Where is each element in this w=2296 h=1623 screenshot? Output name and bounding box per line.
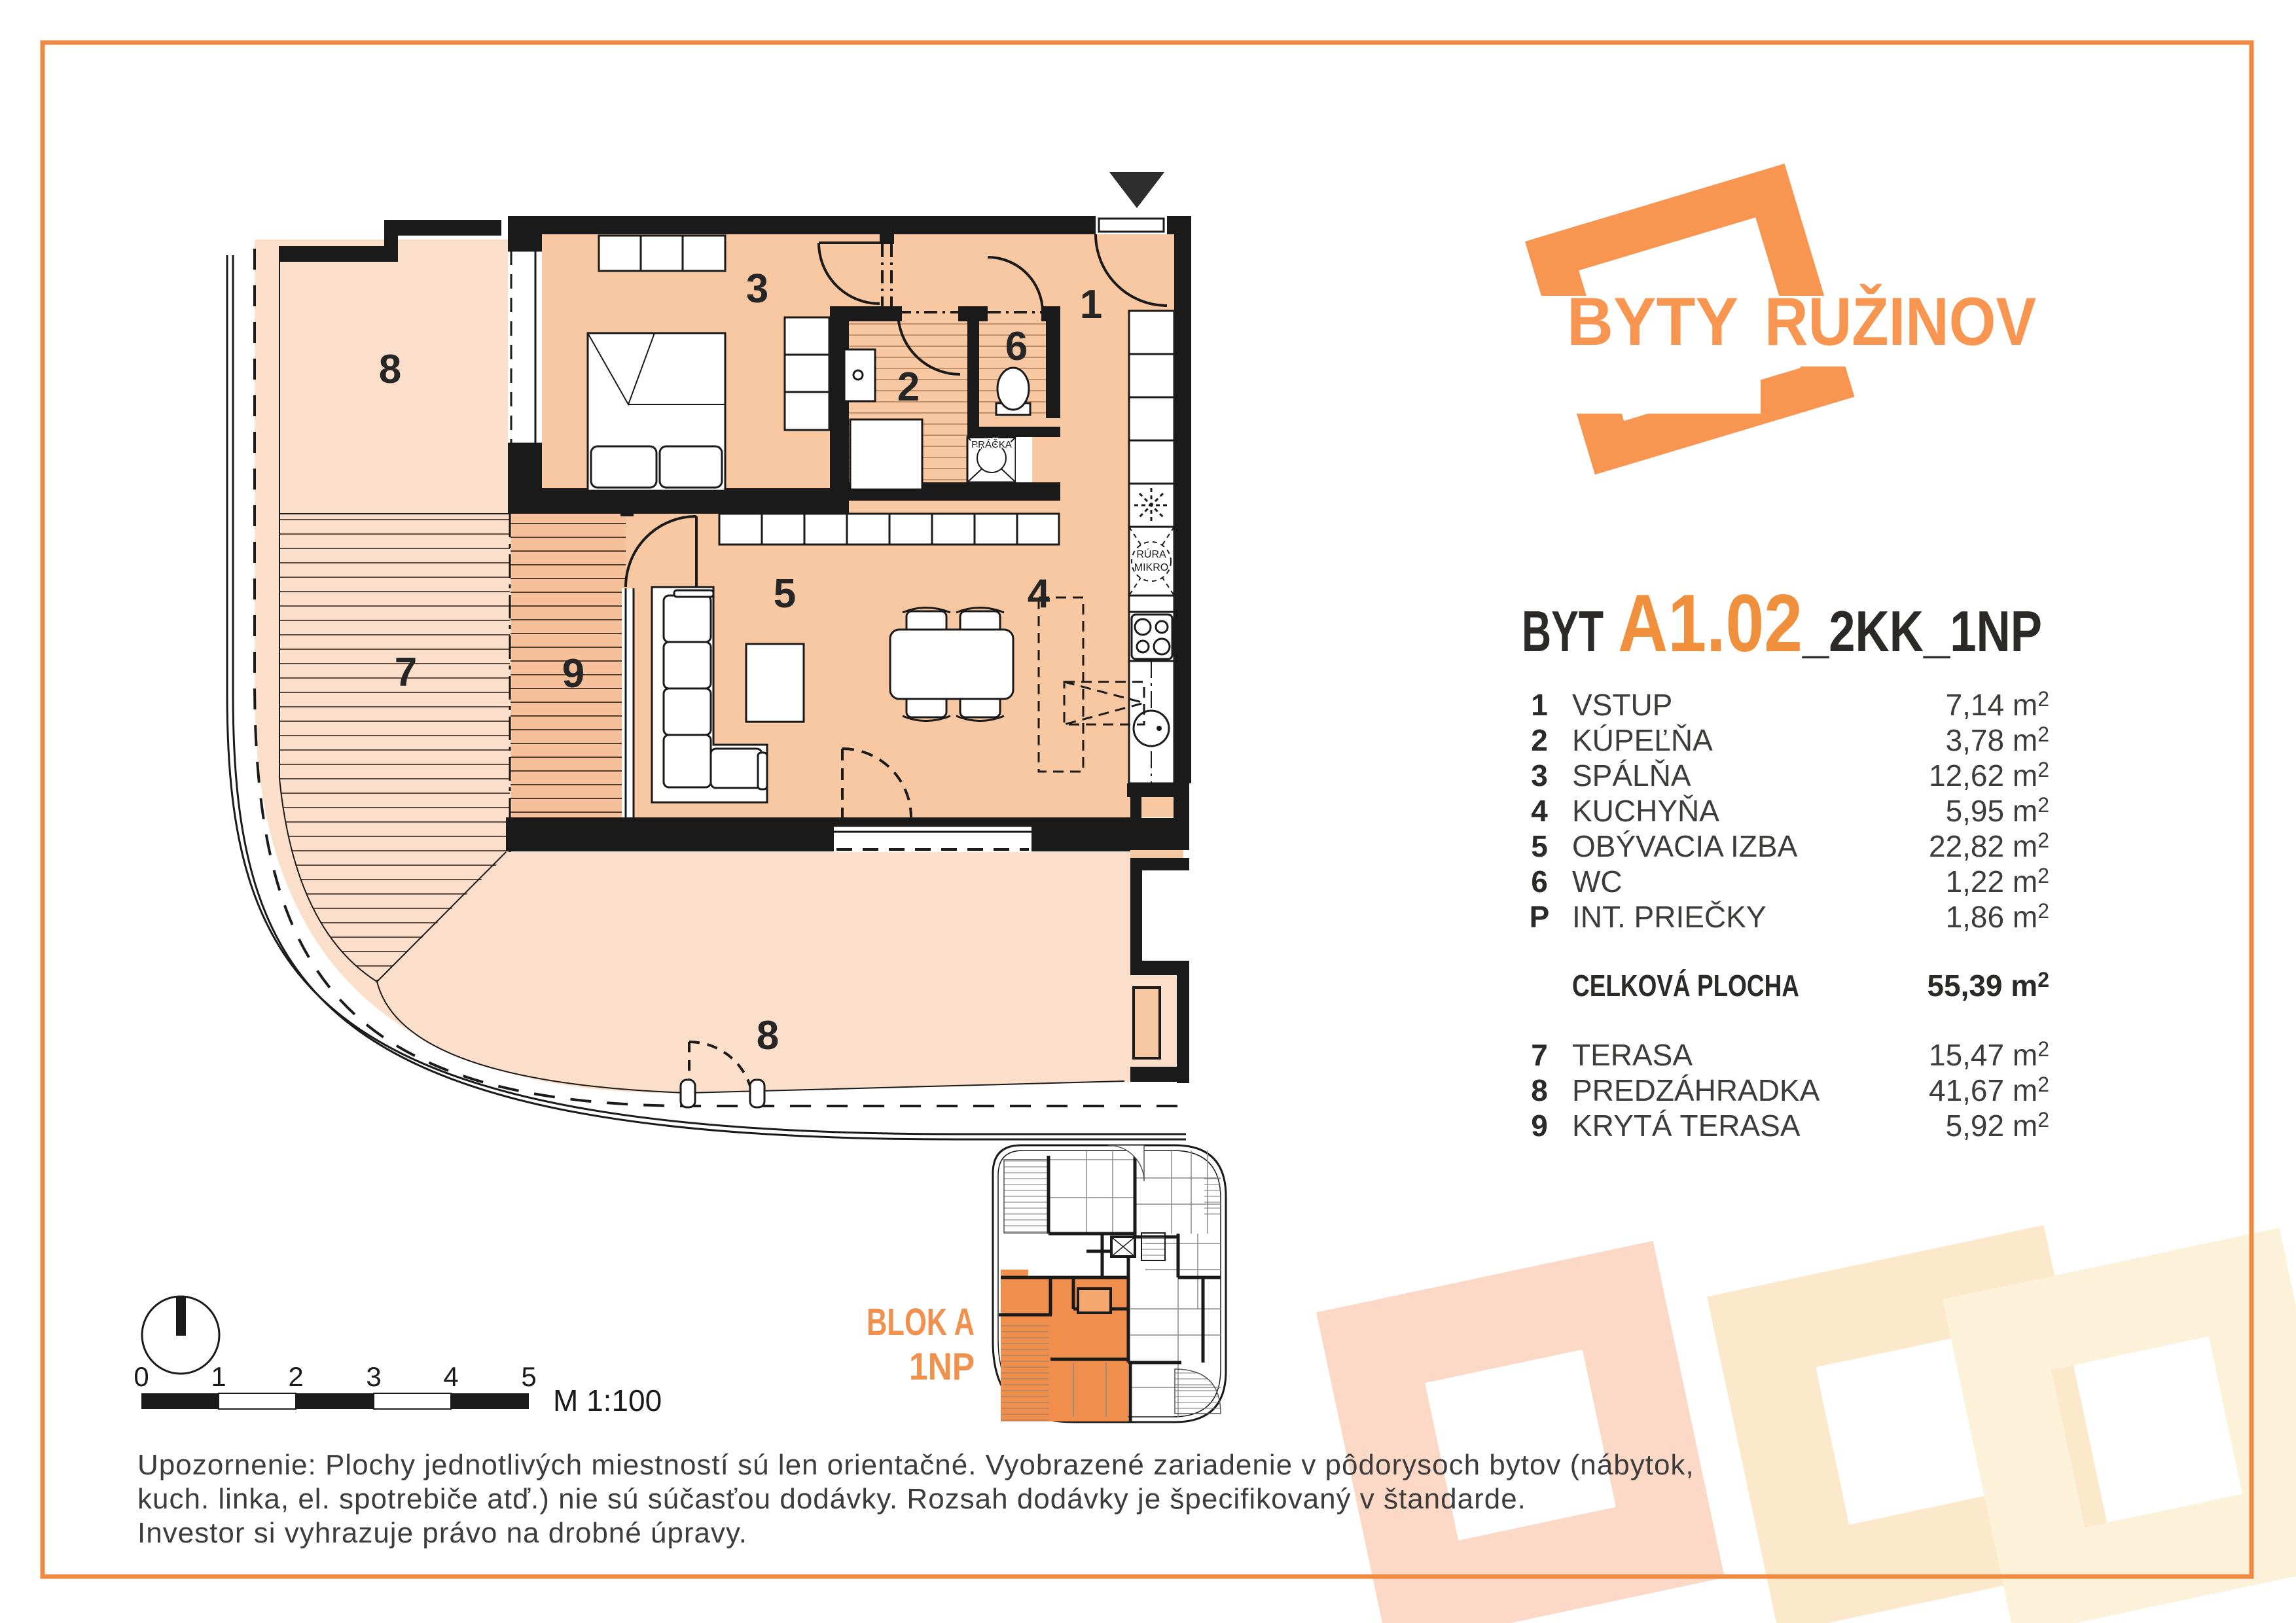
svg-text:3: 3: [1531, 758, 1548, 793]
svg-text:KRYTÁ TERASA: KRYTÁ TERASA: [1572, 1109, 1801, 1143]
svg-text:12,62 m2: 12,62 m2: [1929, 758, 2049, 793]
svg-text:9: 9: [1531, 1109, 1548, 1143]
svg-text:55,39 m2: 55,39 m2: [1927, 968, 2049, 1003]
svg-text:7: 7: [395, 650, 417, 695]
svg-text:RÚRA: RÚRA: [1136, 548, 1166, 560]
svg-text:RUŽINOV: RUŽINOV: [1765, 284, 2036, 360]
svg-text:5,95 m2: 5,95 m2: [1946, 793, 2049, 828]
svg-text:1,86 m2: 1,86 m2: [1946, 899, 2049, 934]
svg-text:M 1:100: M 1:100: [553, 1383, 662, 1418]
svg-text:3: 3: [366, 1361, 381, 1392]
svg-text:PRÁČKA: PRÁČKA: [971, 439, 1012, 450]
svg-text:2: 2: [288, 1361, 303, 1392]
svg-text:VSTUP: VSTUP: [1572, 688, 1672, 722]
svg-text:_2KK_1NP: _2KK_1NP: [1802, 599, 2042, 664]
svg-text:kuch. linka, el. spotrebiče at: kuch. linka, el. spotrebiče atď.) nie sú…: [137, 1483, 1526, 1515]
svg-text:2: 2: [897, 365, 920, 410]
svg-text:MIKRO: MIKRO: [1134, 562, 1168, 573]
svg-text:1NP: 1NP: [909, 1346, 975, 1388]
svg-text:CELKOVÁ PLOCHA: CELKOVÁ PLOCHA: [1572, 969, 1799, 1003]
svg-text:3: 3: [746, 266, 768, 312]
svg-text:8: 8: [757, 1013, 779, 1058]
svg-text:1: 1: [1080, 282, 1102, 327]
svg-text:5: 5: [521, 1361, 536, 1392]
svg-text:2: 2: [1531, 723, 1548, 757]
svg-text:KUCHYŇA: KUCHYŇA: [1572, 794, 1719, 828]
svg-text:8: 8: [1531, 1073, 1548, 1107]
svg-text:OBÝVACIA IZBA: OBÝVACIA IZBA: [1572, 829, 1798, 863]
svg-text:7,14 m2: 7,14 m2: [1946, 687, 2049, 722]
svg-text:P: P: [1530, 900, 1550, 934]
svg-text:1: 1: [211, 1361, 226, 1392]
svg-text:BLOK A: BLOK A: [867, 1301, 975, 1344]
svg-text:6: 6: [1531, 865, 1548, 899]
svg-text:3,78 m2: 3,78 m2: [1946, 722, 2049, 757]
svg-text:Investor si vyhrazuje právo na: Investor si vyhrazuje právo na drobné úp…: [137, 1517, 747, 1549]
svg-text:PREDZÁHRADKA: PREDZÁHRADKA: [1572, 1073, 1820, 1107]
svg-text:15,47 m2: 15,47 m2: [1929, 1037, 2049, 1072]
svg-text:1: 1: [1531, 688, 1548, 722]
svg-text:TERASA: TERASA: [1572, 1038, 1693, 1072]
svg-text:4: 4: [1028, 571, 1050, 616]
svg-text:0: 0: [134, 1361, 149, 1392]
svg-text:5: 5: [774, 571, 796, 616]
svg-text:9: 9: [562, 651, 584, 696]
svg-text:4: 4: [443, 1361, 458, 1392]
svg-text:1,22 m2: 1,22 m2: [1946, 864, 2049, 899]
svg-text:BYT: BYT: [1522, 599, 1604, 664]
svg-text:A1.02: A1.02: [1618, 579, 1803, 669]
svg-text:5,92 m2: 5,92 m2: [1946, 1108, 2049, 1143]
svg-text:Upozornenie: Plochy jednotlivý: Upozornenie: Plochy jednotlivých miestno…: [137, 1449, 1695, 1481]
svg-text:BYTY: BYTY: [1567, 284, 1738, 360]
svg-text:41,67 m2: 41,67 m2: [1929, 1073, 2049, 1107]
svg-text:WC: WC: [1572, 865, 1623, 899]
svg-text:7: 7: [1531, 1038, 1548, 1072]
svg-text:4: 4: [1531, 794, 1548, 828]
svg-text:6: 6: [1005, 324, 1028, 369]
svg-text:INT. PRIEČKY: INT. PRIEČKY: [1572, 900, 1767, 934]
svg-text:KÚPEĽŇA: KÚPEĽŇA: [1572, 723, 1713, 757]
svg-text:22,82 m2: 22,82 m2: [1929, 829, 2049, 863]
svg-text:5: 5: [1531, 829, 1548, 863]
svg-text:SPÁLŇA: SPÁLŇA: [1572, 758, 1691, 793]
svg-text:8: 8: [379, 347, 401, 392]
